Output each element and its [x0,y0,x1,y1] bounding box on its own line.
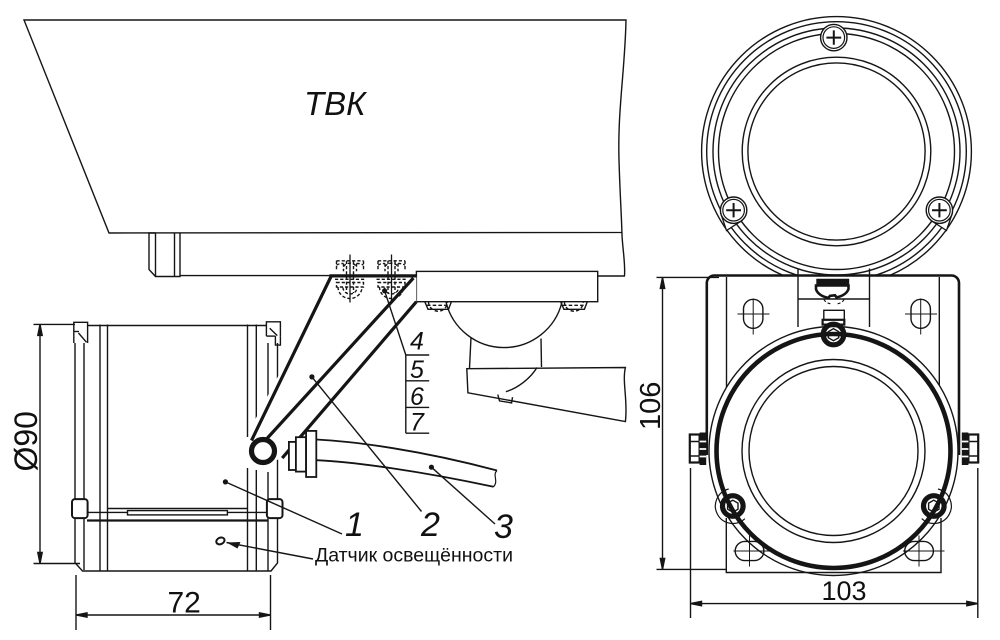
svg-text:5: 5 [410,356,424,384]
svg-text:7: 7 [410,409,425,437]
svg-text:103: 103 [822,576,867,606]
svg-text:Ø90: Ø90 [8,411,44,471]
svg-text:106: 106 [635,382,667,430]
svg-text:4: 4 [410,328,424,356]
svg-text:Датчик освещённости: Датчик освещённости [315,545,513,567]
svg-text:ТВК: ТВК [304,85,367,122]
svg-text:3: 3 [494,508,513,546]
svg-text:1: 1 [345,506,364,544]
svg-text:72: 72 [168,587,201,620]
svg-text:6: 6 [410,383,424,411]
svg-text:2: 2 [420,506,440,544]
